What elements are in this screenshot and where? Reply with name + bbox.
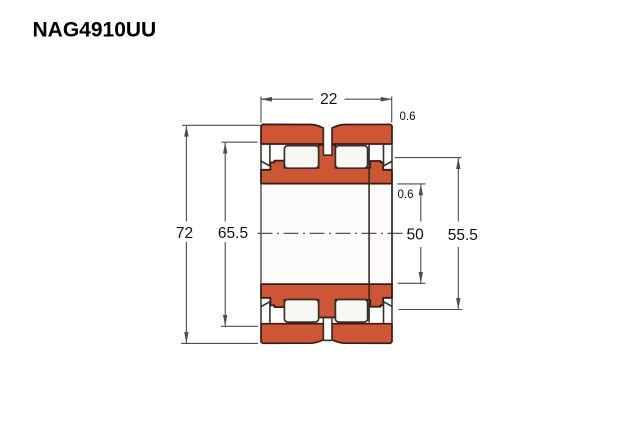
svg-text:0.6: 0.6: [398, 189, 414, 201]
svg-text:NAG4910UU: NAG4910UU: [33, 19, 157, 42]
svg-text:0.6: 0.6: [400, 111, 416, 123]
svg-text:72: 72: [176, 225, 193, 242]
svg-text:65.5: 65.5: [218, 225, 248, 242]
svg-text:50: 50: [407, 227, 425, 244]
svg-text:55.5: 55.5: [448, 227, 478, 244]
svg-text:22: 22: [320, 91, 337, 108]
